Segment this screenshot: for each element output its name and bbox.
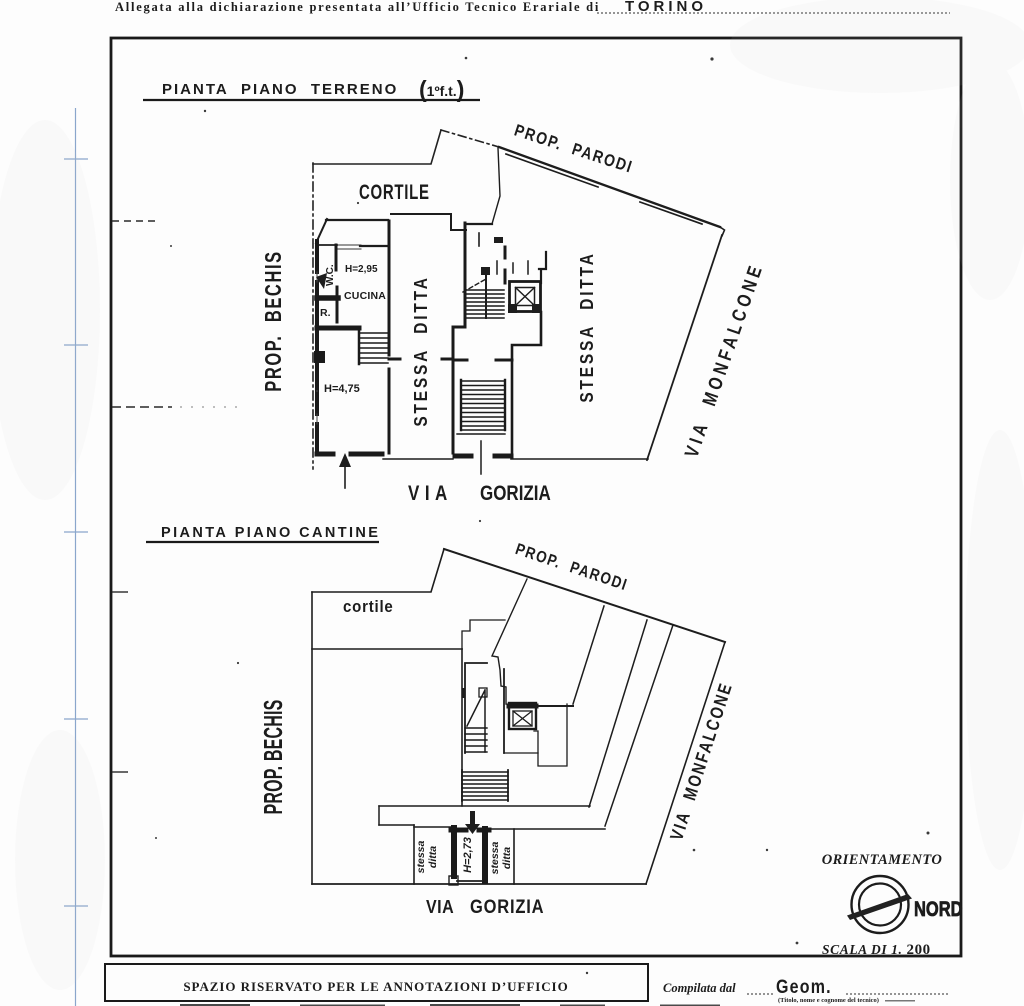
svg-text:ditta: ditta: [427, 846, 439, 868]
svg-text:cortile: cortile: [343, 598, 394, 616]
svg-text:CUCINA: CUCINA: [344, 290, 386, 302]
svg-text:PROP. BECHIS: PROP. BECHIS: [261, 250, 286, 391]
svg-text:VIA: VIA: [408, 482, 453, 505]
svg-text:Compilata dal: Compilata dal: [663, 981, 736, 995]
svg-text:CORTILE: CORTILE: [359, 179, 430, 203]
svg-text:H=2,73: H=2,73: [462, 837, 474, 873]
svg-text:R.: R.: [320, 307, 331, 319]
svg-text:TORINO: TORINO: [625, 0, 707, 15]
svg-text:Geom.: Geom.: [776, 976, 832, 998]
svg-text:ditta: ditta: [501, 847, 513, 869]
svg-text:stessa: stessa: [415, 840, 427, 873]
svg-text:PROP. BECHIS: PROP. BECHIS: [259, 700, 288, 815]
svg-text:Allegata alla dichiarazione pr: Allegata alla dichiarazione presentata a…: [115, 0, 600, 14]
svg-text:STESSA DITTA: STESSA DITTA: [576, 251, 598, 402]
svg-text:NORD: NORD: [914, 898, 963, 922]
svg-text:W.C.: W.C.: [325, 264, 336, 286]
svg-text:PIANTA PIANO TERRENO: PIANTA PIANO TERRENO: [162, 81, 398, 98]
svg-text:SCALA DI 1. 200: SCALA DI 1. 200: [822, 942, 931, 958]
svg-text:GORIZIA: GORIZIA: [480, 482, 551, 505]
svg-text:GORIZIA: GORIZIA: [470, 896, 544, 917]
svg-text:stessa: stessa: [489, 841, 501, 874]
svg-text:ORIENTAMENTO: ORIENTAMENTO: [822, 852, 943, 868]
svg-text:STESSA DITTA: STESSA DITTA: [410, 275, 432, 426]
svg-text:(Titolo, nome e cognome del te: (Titolo, nome e cognome del tecnico): [778, 997, 879, 1004]
svg-text:VIA: VIA: [426, 896, 454, 917]
svg-text:SPAZIO RISERVATO PER LE ANNOTA: SPAZIO RISERVATO PER LE ANNOTAZIONI D’UF…: [183, 979, 568, 994]
svg-text:PIANTA PIANO CANTINE: PIANTA PIANO CANTINE: [161, 525, 380, 541]
svg-text:H=2,95: H=2,95: [345, 264, 378, 275]
svg-text:H=4,75: H=4,75: [324, 383, 360, 395]
